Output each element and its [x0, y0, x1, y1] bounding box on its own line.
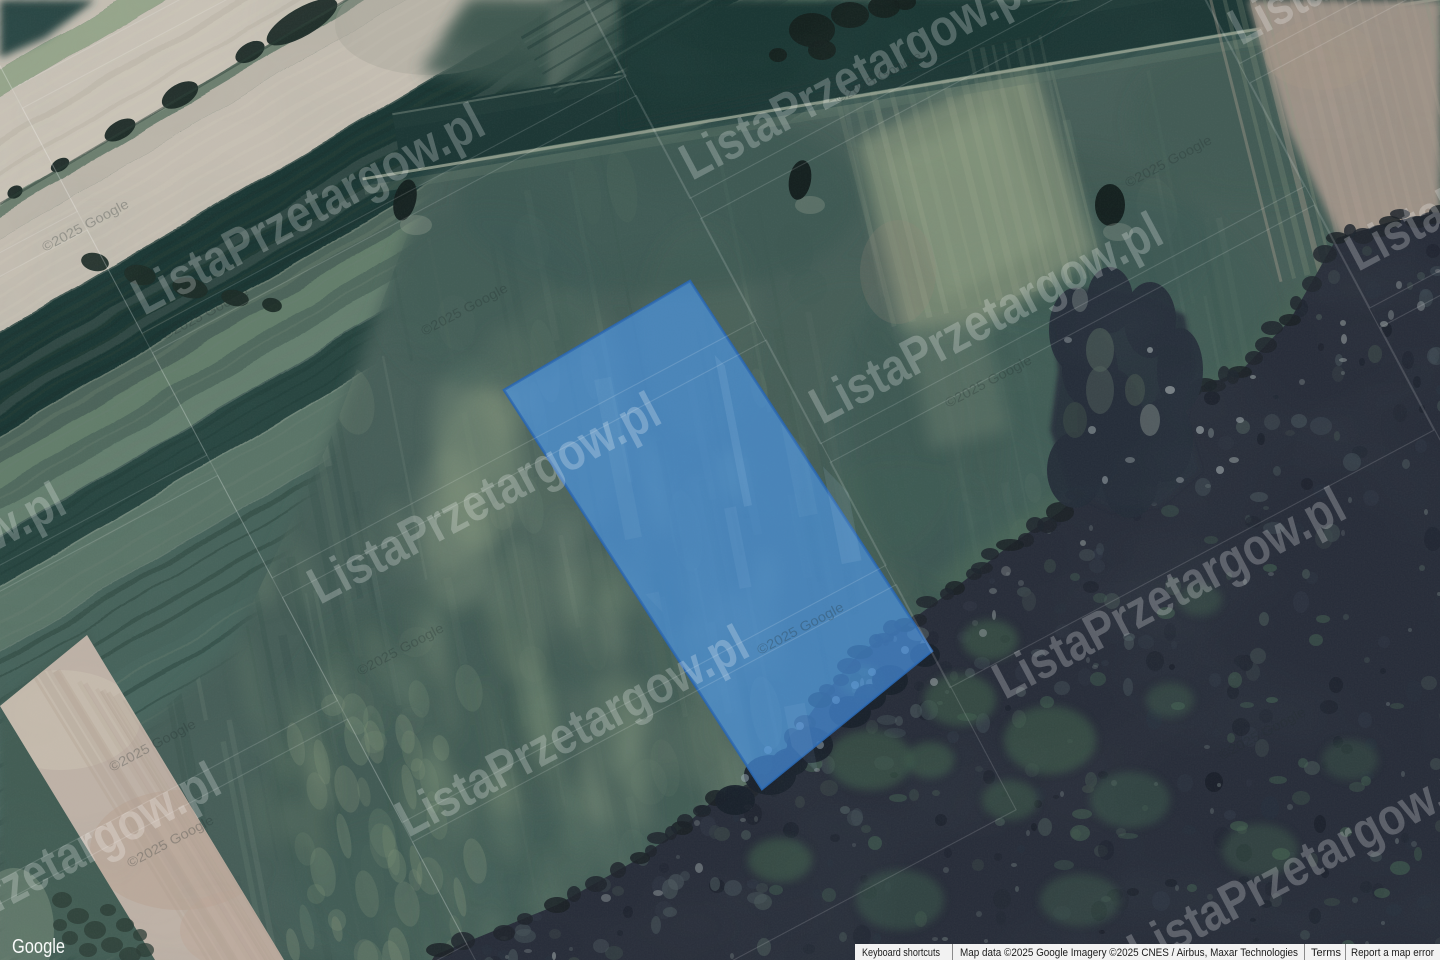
svg-text:Google: Google: [12, 936, 65, 958]
svg-text:Map data ©2025 Google Imagery: Map data ©2025 Google Imagery ©2025 CNES…: [960, 947, 1298, 959]
svg-text:Terms: Terms: [1311, 947, 1341, 959]
svg-text:Report a map error: Report a map error: [1351, 947, 1434, 959]
svg-text:Keyboard shortcuts: Keyboard shortcuts: [862, 947, 940, 959]
